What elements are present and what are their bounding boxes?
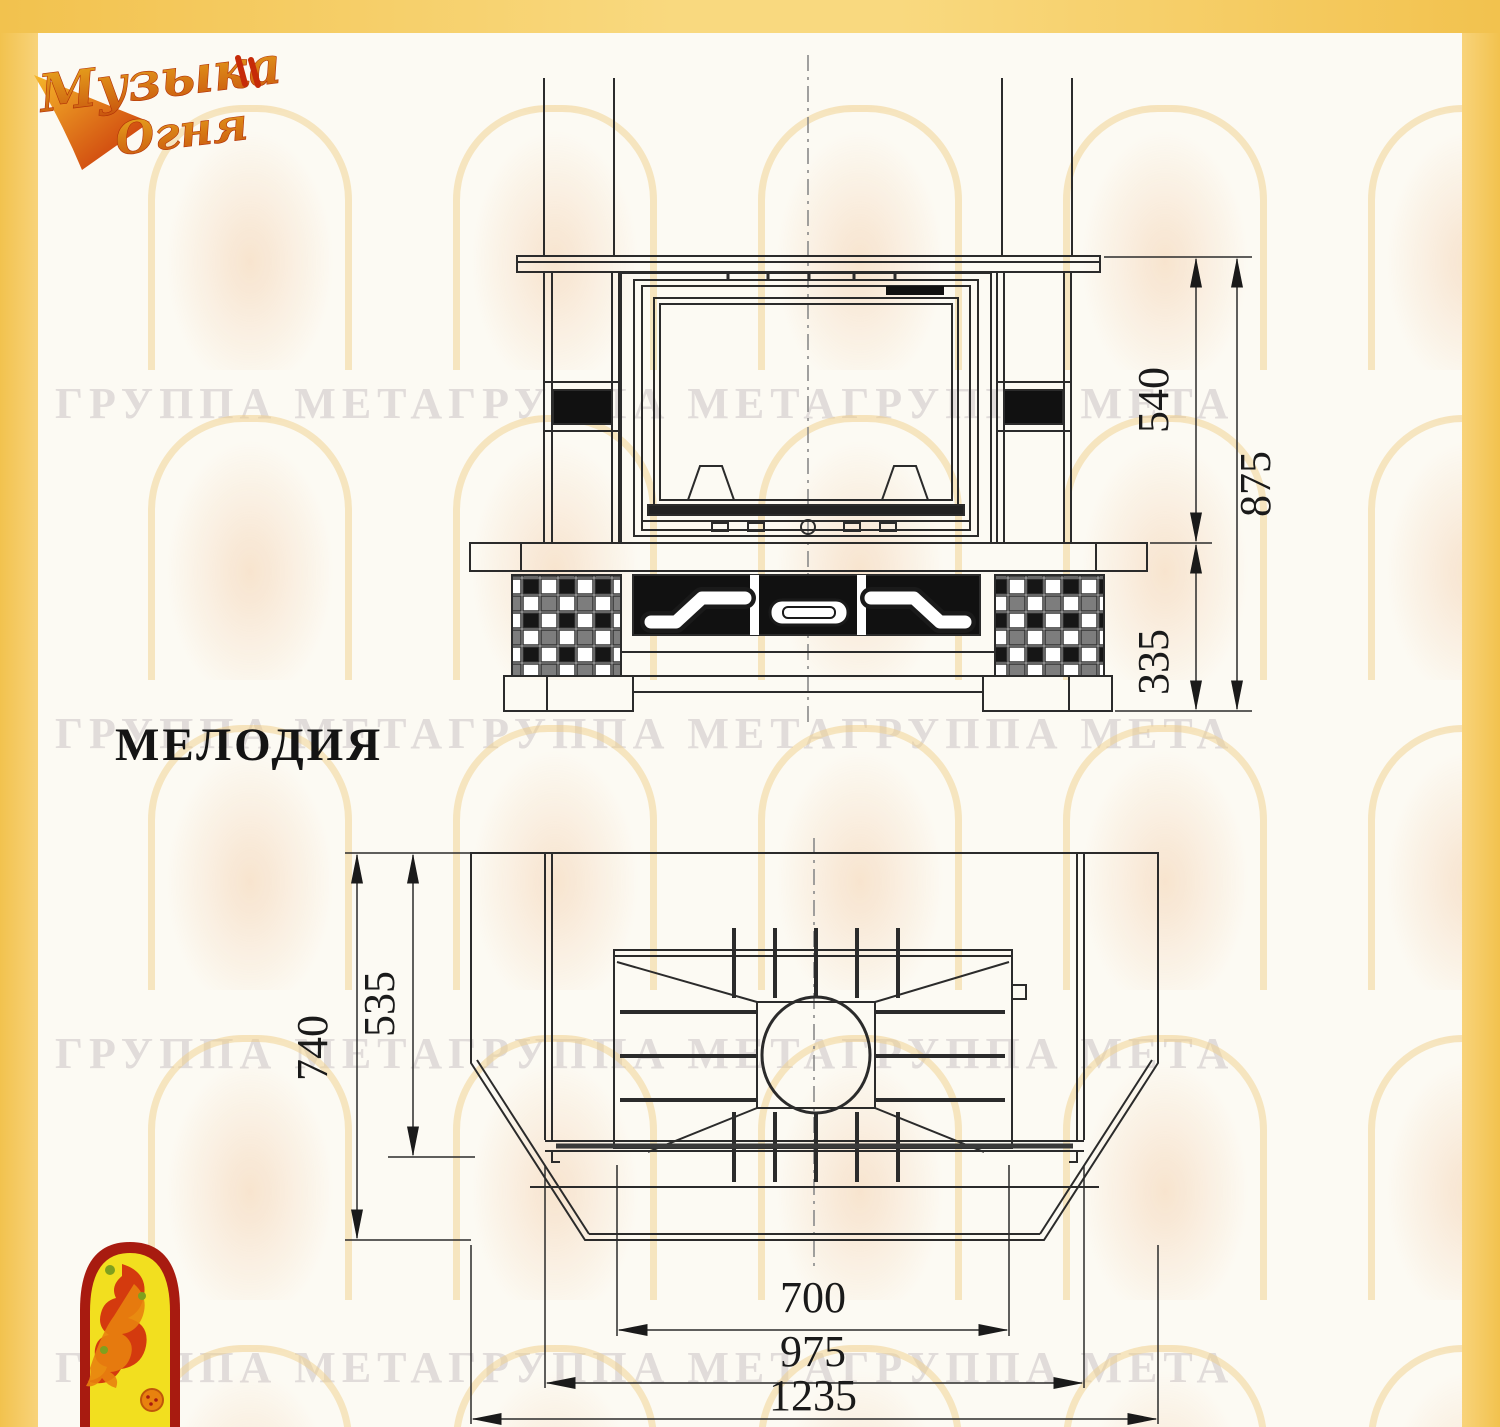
dim-label-535: 535 — [355, 971, 404, 1037]
dim-label-335: 335 — [1129, 629, 1178, 695]
firebox-door — [621, 273, 991, 543]
andiron-right — [882, 466, 928, 500]
chimney-lines — [544, 78, 1072, 256]
front-dimensions — [1104, 257, 1252, 711]
dim-label-700: 700 — [780, 1273, 846, 1322]
emblem-sun-icon — [141, 1389, 163, 1411]
plan-dimensions — [345, 853, 1158, 1424]
frame-bar-right — [1462, 0, 1500, 1427]
door-brand-mark — [886, 286, 944, 295]
air-inlet-tab — [1012, 985, 1026, 999]
brand-logo: Музыка Огня — [20, 30, 280, 180]
mantel-shelf — [517, 256, 1100, 280]
frame-bar-top — [0, 0, 1500, 33]
frame-bar-left — [0, 0, 38, 1427]
dim-label-1235: 1235 — [769, 1371, 857, 1420]
page: ГРУППА МЕТАГРУППА МЕТАГРУППА МЕТА ГРУППА… — [0, 0, 1500, 1427]
dim-label-975: 975 — [780, 1327, 846, 1376]
andiron-left — [688, 466, 734, 500]
fireplace-technical-drawing: 540 335 875 — [0, 0, 1500, 1427]
front-view: 540 335 875 — [470, 55, 1280, 723]
flue-outlet-circle — [762, 997, 870, 1113]
dim-label-740: 740 — [288, 1015, 337, 1081]
firebird-emblem — [60, 1232, 200, 1427]
dim-label-875: 875 — [1231, 451, 1280, 517]
plan-view: 740 535 700 975 1235 — [288, 838, 1158, 1424]
model-title: МЕЛОДИЯ — [115, 719, 383, 771]
dim-label-540: 540 — [1129, 367, 1178, 433]
